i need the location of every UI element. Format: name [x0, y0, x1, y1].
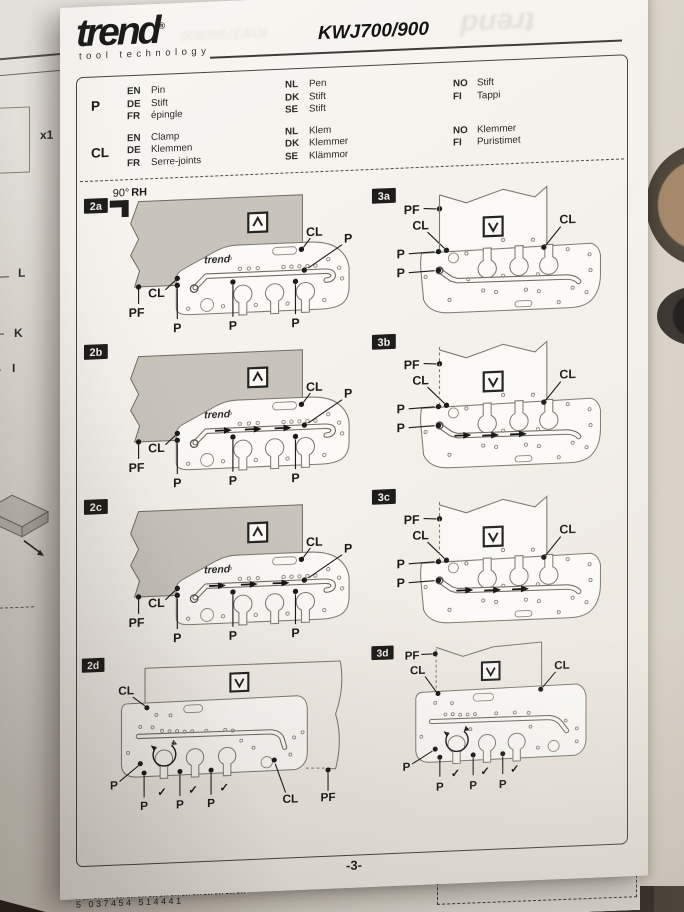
ghost-showthrough-text: trend: [460, 4, 535, 41]
panel-2d: 2d CL P P P P ✓ ✓ ✓: [79, 639, 362, 836]
lang-code: SE: [285, 104, 309, 118]
panel-badge: 3d: [377, 648, 389, 659]
panel-badge: 2c: [90, 502, 102, 515]
lang-value: Stift: [477, 77, 494, 90]
router-up-icon: [248, 368, 267, 388]
legend-group-2: NLKlem DKKlemmer SEKlämmor: [285, 119, 453, 164]
photo-scene: x1 L K I 5 037454 514441: [0, 0, 684, 912]
label-p: P: [176, 798, 184, 811]
panel-3d-figure: 3d PF CL CL P P P P: [364, 628, 623, 821]
lang-value: Stift: [309, 103, 326, 116]
registered-mark: ®: [159, 21, 166, 31]
lang-value: Pin: [151, 85, 165, 98]
diagram-panels: 2a 90°RH 3a: [77, 159, 627, 836]
panel-badge: 3b: [377, 337, 390, 350]
lang-value: Clamp: [151, 130, 179, 144]
router-up-icon: [248, 213, 267, 233]
legend-key-pin: P: [91, 97, 127, 114]
lang-code: DK: [285, 91, 309, 105]
router-down-icon: [484, 217, 503, 237]
lang-code: NO: [453, 78, 477, 92]
label-p: P: [403, 762, 411, 774]
panel-3b: 3b: [364, 318, 625, 484]
panel-3d: 3d PF CL CL P P P P: [364, 628, 625, 824]
router-down-icon: [484, 372, 503, 392]
callout-tick: [0, 370, 1, 371]
quantity-box: [0, 106, 30, 174]
label-cl: CL: [554, 660, 569, 673]
dark-corner: [654, 886, 684, 912]
router-down-icon: [484, 527, 503, 547]
panel-2c-figure: 2c: [79, 484, 362, 651]
worktop-sketch: [0, 485, 58, 580]
router-down-icon: [230, 673, 248, 692]
lang-code: FR: [127, 110, 151, 124]
lang-code: FR: [127, 157, 151, 171]
check-mark: ✓: [510, 763, 519, 775]
lang-code: NL: [285, 125, 309, 139]
lang-code: DE: [127, 98, 151, 112]
lang-code: SE: [285, 150, 309, 164]
lang-value: Klämmor: [309, 148, 348, 162]
lang-value: épingle: [151, 109, 183, 123]
check-mark: ✓: [188, 784, 197, 796]
guide-bush-object: [657, 286, 684, 346]
lang-code: NL: [285, 79, 309, 93]
label-p: P: [499, 779, 507, 791]
manual-page: trend KWJ700/900 trend® tool technology …: [60, 0, 648, 900]
label-p: P: [207, 797, 215, 810]
panel-2d-figure: 2d CL P P P P ✓ ✓ ✓: [79, 639, 362, 836]
check-mark: ✓: [481, 766, 490, 778]
quantity-label: x1: [40, 128, 53, 143]
lang-value: Stift: [309, 90, 326, 103]
lang-value: Stift: [151, 97, 168, 110]
lang-code: DE: [127, 144, 151, 158]
lang-value: Tappi: [477, 89, 500, 102]
label-pf: PF: [405, 650, 420, 663]
lang-code: FI: [453, 137, 477, 151]
callout-k: K: [14, 326, 23, 340]
svg-text:90°RH: 90°RH: [113, 186, 147, 199]
check-mark: ✓: [157, 787, 166, 799]
trend-logo: trend® tool technology: [76, 4, 210, 63]
legend-group-1: ENClamp DEKlemmen FRSerre-joints: [127, 126, 285, 170]
corner-90-icon: [110, 200, 129, 218]
underpage-dashed-line: [0, 606, 34, 609]
legend-group-3: NOKlemmer FIPuristimet: [453, 112, 621, 157]
callout-i: I: [12, 361, 15, 375]
check-mark: ✓: [220, 782, 229, 794]
label-p: P: [436, 781, 444, 793]
label-cl: CL: [282, 792, 298, 806]
panel-3a: 3a: [364, 163, 625, 329]
panel-2c: 2c: [79, 484, 362, 651]
legend-key-clamp: CL: [91, 144, 127, 161]
label-p: P: [469, 780, 477, 792]
panel-badge: 3c: [378, 492, 390, 505]
label-pf: PF: [321, 791, 336, 805]
router-up-icon: [248, 523, 267, 543]
lang-code: NO: [453, 124, 477, 138]
angle-value: 90°: [113, 187, 129, 200]
legend-group-2: NLPen DKStift SEStift: [285, 73, 453, 118]
label-p: P: [110, 779, 118, 792]
lang-code: EN: [127, 85, 151, 99]
check-mark: ✓: [451, 768, 460, 780]
panel-badge: 3a: [378, 190, 391, 203]
panel-3b-figure: 3b: [364, 318, 623, 484]
panel-badge: 2d: [87, 661, 99, 673]
panel-badge: 2b: [90, 347, 103, 360]
panel-2b-figure: 2b: [79, 329, 362, 496]
panel-3a-figure: 3a: [364, 163, 623, 329]
lang-value: Klem: [309, 124, 331, 137]
panel-2b: 2b: [79, 329, 362, 496]
panel-badge: 2a: [90, 201, 103, 214]
lang-code: EN: [127, 132, 151, 146]
router-down-icon: [482, 662, 500, 680]
label-cl: CL: [118, 684, 134, 698]
lang-value: Serre-joints: [151, 155, 201, 170]
page-title-model: KWJ700/900: [318, 19, 429, 46]
content-frame: P ENPin DEStift FRépingle NLPen DKStift …: [76, 54, 628, 867]
label-p: P: [140, 800, 148, 813]
label-cl: CL: [410, 665, 425, 678]
lang-value: Puristimet: [477, 135, 521, 149]
angle-hand: RH: [131, 186, 147, 199]
panel-3c-figure: 3c: [364, 473, 623, 639]
legend-group-1: ENPin DEStift FRépingle: [127, 80, 285, 124]
panel-2a-figure: 2a 90°RH: [79, 174, 362, 341]
callout-tick: [0, 333, 4, 334]
header-rule: [210, 39, 622, 58]
lang-code: FI: [453, 90, 477, 104]
legend-group-3: NOStift FITappi: [453, 65, 621, 110]
panel-3c: 3c: [364, 473, 625, 639]
panel-2a: 2a 90°RH: [79, 174, 362, 341]
lang-value: Pen: [309, 78, 326, 91]
callout-tick: [0, 276, 9, 277]
tape-roll-object: [646, 143, 684, 267]
lang-code: DK: [285, 138, 309, 152]
callout-l: L: [18, 266, 25, 280]
legend: P ENPin DEStift FRépingle NLPen DKStift …: [77, 55, 627, 172]
